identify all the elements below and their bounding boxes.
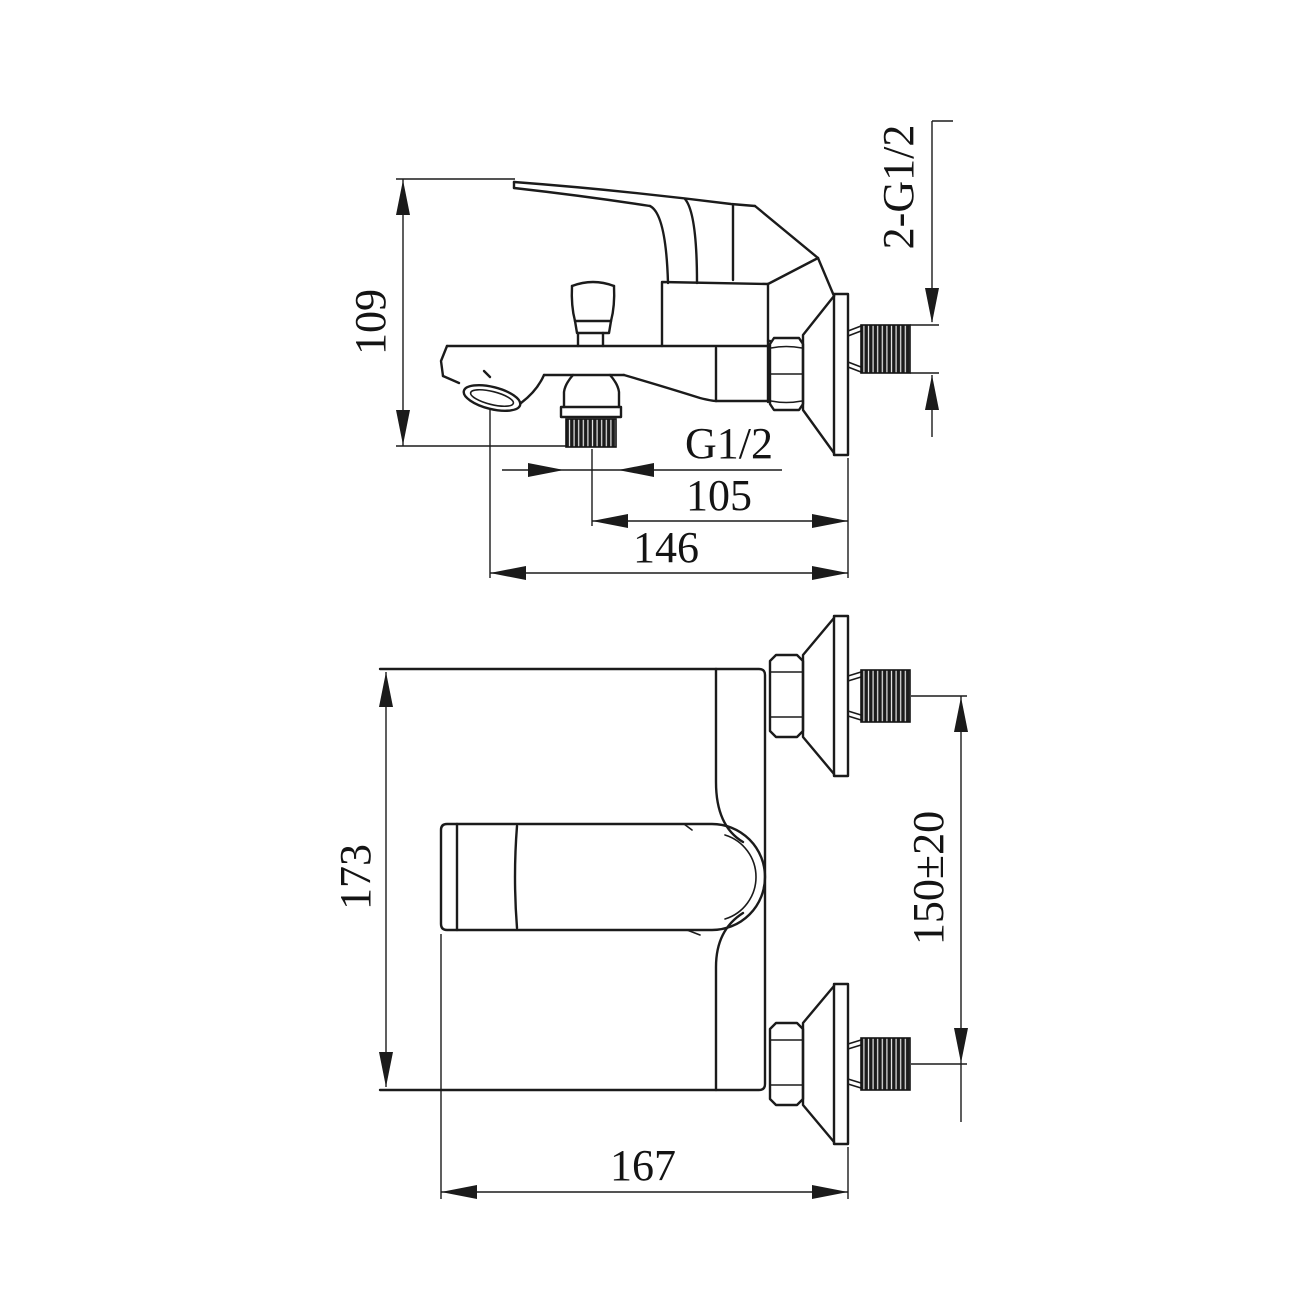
dim-overall-height-173: 173 — [331, 672, 393, 1087]
upper-connection — [770, 616, 910, 776]
arrowhead — [812, 514, 848, 528]
diverter-knob — [572, 282, 614, 346]
dim-wall-thread-2g12: 2-G1/2 — [874, 121, 953, 437]
front-body — [380, 669, 765, 1090]
dim-150-label: 150±20 — [904, 811, 953, 945]
arrowhead — [954, 697, 968, 732]
dim-146-label: 146 — [633, 523, 699, 572]
dim-reach-146: 146 — [490, 409, 848, 580]
arrowhead — [396, 180, 410, 215]
arrowhead — [379, 672, 393, 707]
arrowhead — [490, 566, 526, 580]
front-view — [380, 616, 910, 1144]
dim-inlet-spacing-150: 150±20 — [904, 696, 968, 1122]
arrowhead — [592, 514, 628, 528]
arrowhead — [379, 1052, 393, 1087]
arrowhead — [925, 288, 939, 323]
dim-109-label: 109 — [346, 289, 395, 355]
wall-thread-nipple — [861, 325, 910, 373]
handle-lever — [514, 182, 834, 296]
arrowhead — [954, 1028, 968, 1063]
side-view — [441, 182, 910, 455]
dim-g12-label: G1/2 — [685, 419, 773, 468]
escutcheon — [803, 618, 834, 774]
dim-2g12-label: 2-G1/2 — [874, 125, 923, 250]
arrowhead — [925, 375, 939, 410]
escutcheon — [803, 986, 834, 1142]
aerator — [461, 380, 523, 415]
front-view-dimensions: 173 150±20 167 — [331, 672, 968, 1199]
arrowhead — [396, 410, 410, 445]
dim-height-109: 109 — [346, 179, 566, 446]
escutcheon-plate — [834, 984, 848, 1144]
escutcheon-plate — [834, 616, 848, 776]
dim-overall-width-167: 167 — [441, 934, 848, 1199]
front-handle — [441, 824, 765, 935]
drawing-sheet: 109 G1/2 105 146 2-G1/2 — [0, 0, 1300, 1300]
dim-167-label: 167 — [610, 1141, 676, 1190]
escutcheon-plate — [834, 294, 848, 455]
faucet-technical-drawing: 109 G1/2 105 146 2-G1/2 — [0, 0, 1300, 1300]
lower-connection — [770, 984, 910, 1144]
arrowhead — [812, 566, 848, 580]
arrowhead — [528, 463, 564, 477]
arrowhead — [441, 1185, 477, 1199]
shower-outlet-thread — [566, 419, 616, 447]
wall-union — [770, 294, 910, 455]
escutcheon — [803, 296, 834, 453]
hex-nut — [770, 1023, 803, 1105]
hex-nut — [770, 655, 803, 737]
dim-173-label: 173 — [331, 844, 380, 910]
wall-thread-nipple — [861, 1038, 910, 1090]
dim-outlet-thread-g12: G1/2 — [502, 419, 782, 477]
spout — [441, 346, 770, 416]
wall-thread-nipple — [861, 670, 910, 722]
arrowhead — [812, 1185, 848, 1199]
dim-105-label: 105 — [686, 471, 752, 520]
shower-outlet — [561, 375, 621, 447]
arrowhead — [618, 463, 654, 477]
